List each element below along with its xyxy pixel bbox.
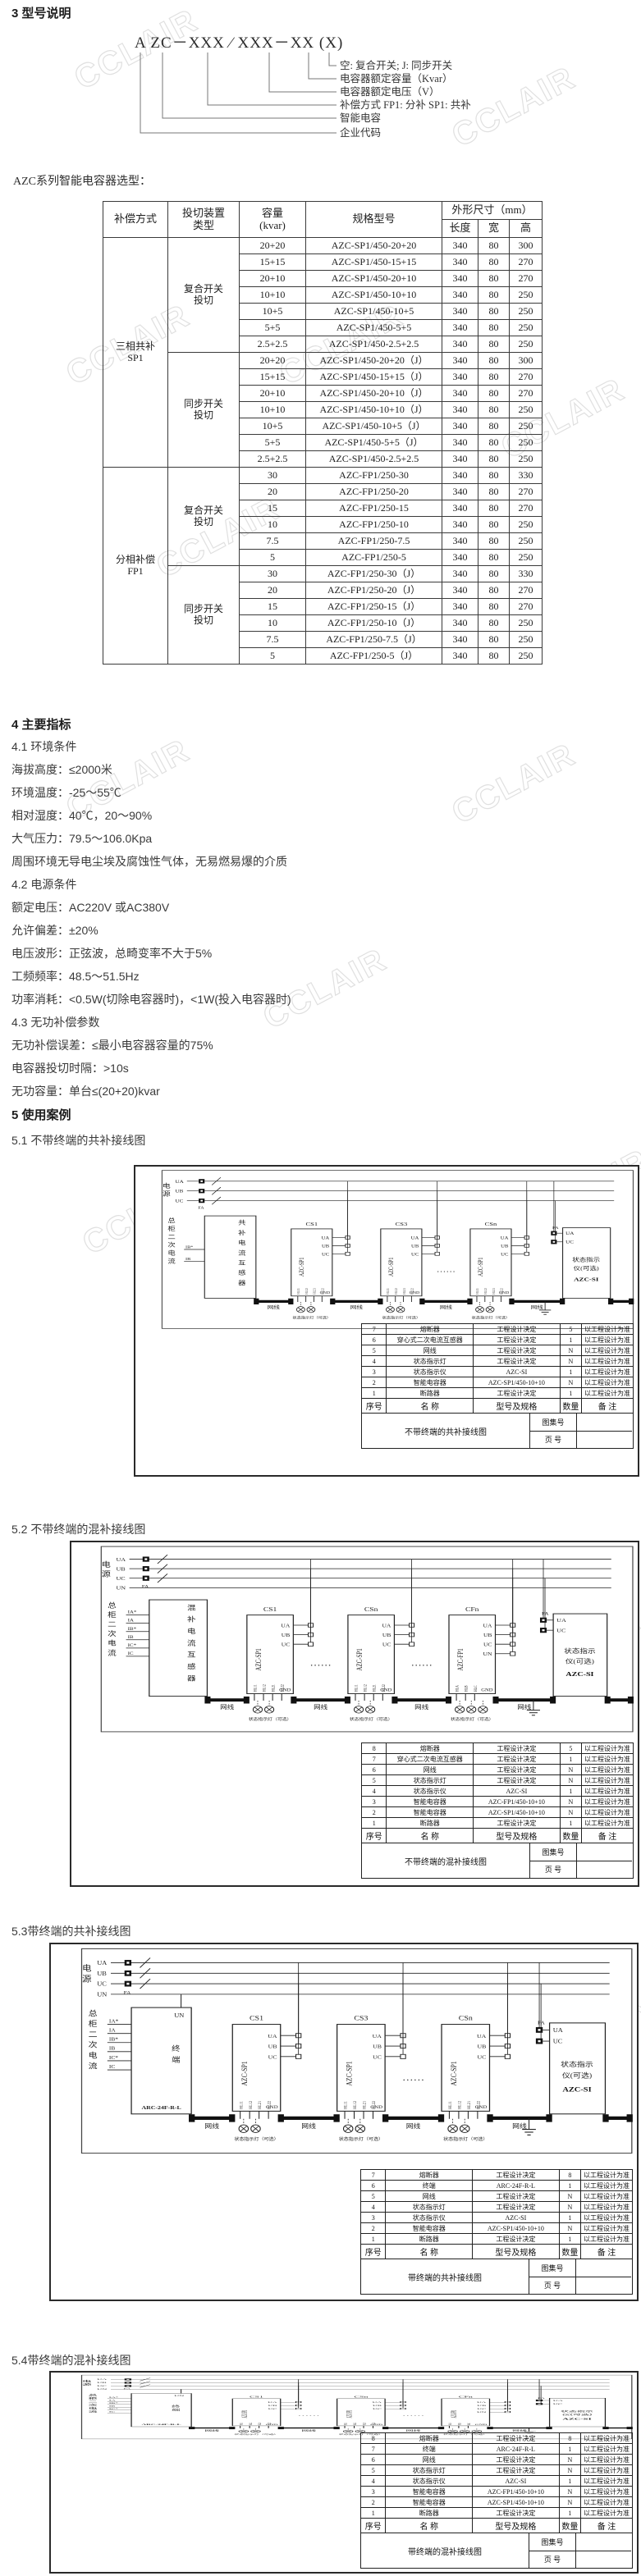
cable-connector <box>487 2114 492 2122</box>
unit-id: CFn <box>459 2396 474 2398</box>
unit-term-label: UA <box>483 1624 492 1628</box>
terminal-label: 端 <box>172 2056 181 2065</box>
parts-table: 8熔断器工程设计决定8以工程设计为准7终端ARC-24F-R-L1以工程设计为准… <box>360 2432 633 2533</box>
parts-header-cell: 型号及规格 <box>473 2245 560 2259</box>
parts-header-cell: 备 注 <box>582 1829 634 1843</box>
part-note: 以工程设计为准 <box>581 2234 633 2245</box>
part-qty: N <box>560 1775 581 1786</box>
part-spec: 工程设计决定 <box>474 1335 561 1345</box>
indicator-input-label: UC <box>556 1628 565 1633</box>
lamps-caption: 状态指示灯（可选） <box>249 1716 292 1722</box>
height-cell: 270 <box>510 254 543 271</box>
width-cell: 80 <box>478 517 510 533</box>
ct-label: 混 <box>187 1605 196 1612</box>
indicator-model: AZC-SI <box>574 1276 598 1282</box>
capacity-cell: 5 <box>240 550 306 566</box>
ellipsis: …… <box>411 1659 433 1668</box>
atlas-no-value <box>577 1843 632 1861</box>
spec-line: 功率消耗：<0.5W(切除电容器时)，<1W(投入电容器时) <box>11 988 291 1011</box>
col-height: 高 <box>510 220 543 238</box>
unit-pin-label: HLB <box>464 1685 469 1692</box>
indicator-model: AZC-SI <box>565 1670 594 1678</box>
phase-label: UA <box>97 1960 108 1966</box>
lamps-caption: 状态指示灯（可选） <box>339 2136 383 2142</box>
ct-label: 流 <box>187 1639 196 1647</box>
model-label: 补偿方式 FP1: 分补 SP1: 共补 <box>340 98 471 111</box>
cable-connector <box>229 2427 235 2429</box>
model-cell: AZC-SP1/450-5+5（J） <box>306 435 442 451</box>
cable-label: 网线 <box>314 1703 328 1710</box>
lamps-caption: 状态指示灯（可选） <box>451 1716 494 1722</box>
spec-line: 允许偏差：±20% <box>11 919 291 942</box>
part-qty: N <box>559 2497 580 2508</box>
phase-label: UC <box>175 1199 183 1204</box>
spec-line: 无功容量：单台≤(20+20)kvar <box>11 1080 291 1103</box>
length-cell: 340 <box>442 517 478 533</box>
cable-label: 网线 <box>406 2429 421 2432</box>
part-name: 网线 <box>387 1345 474 1356</box>
part-qty: N <box>560 1797 581 1807</box>
part-qty: 5 <box>560 1324 581 1335</box>
model-cell: AZC-FP1/250-10 <box>306 517 442 533</box>
power-label: 源 <box>163 1190 171 1197</box>
spec-line: 环境温度：-25～55℃ <box>11 781 291 804</box>
part-qty: 1 <box>559 2234 580 2245</box>
part-spec: 工程设计决定 <box>474 1754 561 1765</box>
cable-label: 网线 <box>301 2122 316 2130</box>
lamps-caption: 状态指示灯（可选） <box>382 1315 421 1320</box>
height-cell: 250 <box>510 615 543 632</box>
part-qty: N <box>559 2202 580 2213</box>
length-cell: 340 <box>442 369 478 386</box>
part-name: 智能电容器 <box>387 1377 474 1388</box>
power-label: 电 <box>82 1964 92 1974</box>
parts-row: 1断路器工程设计决定1以工程设计为准 <box>362 1388 634 1399</box>
indicator-model: AZC-SI <box>562 2418 591 2420</box>
indicator-box <box>550 2398 606 2427</box>
spec-line: 大气压力：79.5～106.0Kpa <box>11 827 291 850</box>
unit-pin-label: HLA <box>455 1685 460 1692</box>
part-spec: 工程设计决定 <box>474 1818 561 1829</box>
unit-pin-label: HLC <box>467 2423 471 2425</box>
part-name: 状态指示灯 <box>386 2465 473 2476</box>
unit-term-label: UB <box>382 1633 391 1638</box>
width-cell: 80 <box>478 582 510 599</box>
part-note: 以工程设计为准 <box>581 2223 633 2234</box>
switch-cell: 复合开关 投切 <box>168 468 240 566</box>
part-name: 智能电容器 <box>386 2497 473 2508</box>
height-cell: 250 <box>510 533 543 550</box>
terminal-label: 终 <box>172 2044 181 2053</box>
col-switch: 投切装置 类型 <box>168 202 240 238</box>
indicator-input-label: UA <box>565 1231 575 1236</box>
ellipsis: …… <box>437 1267 456 1274</box>
capacity-cell: 20 <box>240 484 306 500</box>
gnd-label: GND <box>370 2424 382 2426</box>
part-spec: 工程设计决定 <box>473 2455 560 2465</box>
cable-connector <box>345 1697 350 1704</box>
ct-box <box>149 1600 208 1697</box>
part-note: 以工程设计为准 <box>581 2444 633 2455</box>
part-spec: AZC-SI <box>473 2476 560 2487</box>
bus-label: 柜 <box>89 2397 98 2400</box>
width-cell: 80 <box>478 271 510 287</box>
unit-pin-label: HL11 <box>344 2101 348 2109</box>
width-cell: 80 <box>478 533 510 550</box>
indicator-name: 状态指示 <box>572 1256 600 1263</box>
bus-label: 次 <box>89 2040 98 2050</box>
power-label: 源 <box>82 1975 92 1985</box>
part-qty: 1 <box>560 1367 581 1377</box>
part-note: 以工程设计为准 <box>581 2508 633 2519</box>
part-spec: 工程设计决定 <box>473 2508 560 2519</box>
unit-term-label: UB <box>373 2044 382 2049</box>
part-no: 4 <box>362 1786 387 1797</box>
part-note: 以工程设计为准 <box>582 1807 634 1818</box>
width-cell: 80 <box>478 304 510 320</box>
part-no: 2 <box>361 2223 386 2234</box>
ct-pin-label: IB <box>185 1258 191 1262</box>
parts-table: 7熔断器工程设计决定8以工程设计为准6终端ARC-24F-R-L1以工程设计为准… <box>360 2169 633 2259</box>
capacity-cell: 10+10 <box>240 402 306 418</box>
spec-line: 4.1 环境条件 <box>11 735 291 758</box>
part-name: 断路器 <box>386 2508 473 2519</box>
capacity-cell: 2.5+2.5 <box>240 451 306 468</box>
parts-row: 6穿心式二次电流互感器工程设计决定1以工程设计为准 <box>362 1335 634 1345</box>
length-cell: 340 <box>442 599 478 615</box>
unit-pin-label: HL11 <box>354 1684 359 1692</box>
spec-line: 相对湿度：40℃，20～90% <box>11 804 291 827</box>
atlas-no-value <box>576 2259 631 2277</box>
cable-connector <box>378 1299 382 1304</box>
phase-label: UA <box>175 1180 184 1185</box>
part-note: 以工程设计为准 <box>582 1335 634 1345</box>
lamps-caption: 状态指示灯（可选） <box>234 2433 278 2435</box>
part-note: 以工程设计为准 <box>581 2191 633 2202</box>
part-qty: 1 <box>560 1818 581 1829</box>
indicator-model: AZC-SI <box>562 2086 592 2094</box>
part-qty: 1 <box>559 2476 580 2487</box>
phase-label: UA <box>116 1557 126 1563</box>
width-cell: 80 <box>478 287 510 304</box>
unit-model: AZC-SP1 <box>298 1257 305 1277</box>
section4-lines: 4.1 环境条件海拔高度：≤2000米环境温度：-25～55℃相对湿度：40℃，… <box>11 735 291 1103</box>
bus-label: 次 <box>89 2404 98 2406</box>
model-cell: AZC-SP1/450-2.5+2.5 <box>306 336 442 353</box>
parts-header-cell: 序号 <box>362 1399 387 1414</box>
part-qty: 5 <box>560 1743 581 1754</box>
model-cell: AZC-FP1/250-5（J） <box>306 648 442 665</box>
part-name: 熔断器 <box>386 2433 473 2444</box>
model-leader-line <box>140 53 337 133</box>
cable-connector <box>627 2114 633 2122</box>
unit-term-label: UB <box>411 1245 419 1249</box>
cable-connector <box>291 1697 296 1704</box>
drawing-title: 不带终端的混补接线图 <box>362 1843 530 1878</box>
phase-label: UC <box>97 2386 107 2387</box>
parts-header-cell: 备 注 <box>582 1399 634 1414</box>
unit-id: CS1 <box>250 2014 263 2021</box>
bus-label: 流 <box>89 2061 98 2071</box>
ct-pin-label: IB* <box>109 2037 119 2042</box>
part-no: 2 <box>362 1377 387 1388</box>
height-cell: 250 <box>510 451 543 468</box>
col-length: 长度 <box>442 220 478 238</box>
part-name: 状态指示仪 <box>387 1367 474 1377</box>
ct-pin-label: IB* <box>128 1626 137 1631</box>
terminal-label: 终 <box>172 2405 181 2407</box>
parts-row: 7熔断器工程设计决定8以工程设计为准 <box>361 2170 633 2181</box>
length-cell: 340 <box>442 468 478 484</box>
title-block: 带终端的共补接线图图集号页 号 <box>360 2259 633 2295</box>
unit-term-label: UC <box>477 2409 486 2410</box>
cable-connector <box>602 2114 608 2122</box>
part-note: 以工程设计为准 <box>581 2487 633 2497</box>
part-qty: N <box>560 1807 581 1818</box>
capacity-cell: 20+20 <box>240 353 306 369</box>
terminal-model: ARC-24F-R-L <box>142 2424 181 2426</box>
parts-table: 8熔断器工程设计决定5以工程设计为准7穿心式二次电流互感器工程设计决定1以工程设… <box>361 1742 634 1843</box>
part-name: 智能电容器 <box>386 2487 473 2497</box>
cable-connector <box>608 1299 613 1304</box>
phase-label: UB <box>97 1971 107 1977</box>
atlas-no-label: 图集号 <box>530 1414 577 1431</box>
capacity-cell: 7.5 <box>240 533 306 550</box>
ct-pin-label: IA <box>128 1618 135 1623</box>
part-note: 以工程设计为准 <box>582 1797 634 1807</box>
parts-header-cell: 数量 <box>559 2245 580 2259</box>
ct-pin-label: IC <box>128 1651 134 1656</box>
part-no: 4 <box>361 2476 386 2487</box>
col-model: 规格型号 <box>306 202 442 238</box>
length-cell: 340 <box>442 451 478 468</box>
length-cell: 340 <box>442 320 478 336</box>
parts-row: 3状态指示仪AZC-SI1以工程设计为准 <box>362 1367 634 1377</box>
part-spec: 工程设计决定 <box>473 2433 560 2444</box>
parts-row: 6网线工程设计决定N以工程设计为准 <box>361 2455 633 2465</box>
unit-term-label: UB <box>477 2405 486 2407</box>
title-block: 带终端的混补接线图图集号页 号 <box>360 2533 633 2569</box>
cable-connector <box>204 1697 210 1704</box>
watermark-text: CCLAIR <box>446 737 582 831</box>
model-cell: AZC-SP1/450-2.5+2.5 <box>306 451 442 468</box>
part-qty: N <box>559 2223 580 2234</box>
part-name: 智能电容器 <box>386 2223 473 2234</box>
part-note: 以工程设计为准 <box>581 2455 633 2465</box>
length-cell: 340 <box>442 402 478 418</box>
model-cell: AZC-FP1/250-15（J） <box>306 599 442 615</box>
unit-term-label: UC <box>373 2054 382 2060</box>
part-spec: AZC-SI <box>474 1367 561 1377</box>
bus-label: 电 <box>89 2407 98 2409</box>
section4-heading: 4 主要指标 <box>11 715 71 733</box>
phase-label: UN <box>116 1586 126 1592</box>
height-cell: 250 <box>510 435 543 451</box>
capacity-cell: 30 <box>240 468 306 484</box>
atlas-no-label: 图集号 <box>529 2533 576 2551</box>
part-name: 智能电容器 <box>387 1797 474 1807</box>
length-cell: 340 <box>442 304 478 320</box>
model-cell: AZC-FP1/250-5 <box>306 550 442 566</box>
wiring-schematic: 电源UAUBUCUNFA总柜二次电流IA*IAIB*IBIC*ICUN终端ARC… <box>53 2374 635 2440</box>
unit-model: AZC-SP1 <box>241 2410 250 2418</box>
length-cell: 340 <box>442 533 478 550</box>
cable-connector <box>438 2427 444 2429</box>
part-name: 状态指示仪 <box>386 2476 473 2487</box>
phase-label: UB <box>116 1566 125 1572</box>
part-no: 6 <box>361 2455 386 2465</box>
part-note: 以工程设计为准 <box>582 1775 634 1786</box>
part-note: 以工程设计为准 <box>581 2497 633 2508</box>
part-name: 熔断器 <box>387 1324 474 1335</box>
phase-label: UC <box>116 1576 125 1582</box>
part-note: 以工程设计为准 <box>581 2170 633 2181</box>
part-spec: AZC-SP1/450-10+10 <box>473 2497 560 2508</box>
capacity-cell: 10+10 <box>240 287 306 304</box>
height-cell: 270 <box>510 582 543 599</box>
width-cell: 80 <box>478 369 510 386</box>
unit-pin-label: HL12 <box>249 2100 253 2108</box>
unit-pin-label: HL11 <box>239 2423 243 2425</box>
mode-cell: 分相补偿 FP1 <box>103 468 168 665</box>
part-qty: 1 <box>560 1335 581 1345</box>
capacity-cell: 5+5 <box>240 320 306 336</box>
unit-model: AZC-SP1 <box>477 1257 484 1277</box>
model-cell: AZC-SP1/450-20+10 <box>306 271 442 287</box>
datasheet-page: CCLAIRCCLAIRCCLAIRCCLAIRCCLAIRCCLAIRCCLA… <box>0 0 641 2576</box>
part-name: 终端 <box>386 2444 473 2455</box>
indicator-name: 状态指示 <box>561 2409 593 2412</box>
parts-header-cell: 数量 <box>559 2519 580 2533</box>
unit-id: CS1 <box>250 2396 264 2398</box>
part-spec: AZC-SI <box>473 2213 560 2223</box>
unit-term-label: UB <box>322 1245 329 1249</box>
parts-row: 5状态指示灯工程设计决定N以工程设计为准 <box>361 2465 633 2476</box>
cable-connector <box>333 2427 339 2429</box>
gnd-label: GND <box>410 1291 420 1295</box>
length-cell: 340 <box>442 254 478 271</box>
part-note: 以工程设计为准 <box>582 1743 634 1754</box>
part-no: 6 <box>361 2181 386 2191</box>
part-note: 以工程设计为准 <box>581 2433 633 2444</box>
model-cell: AZC-FP1/250-10（J） <box>306 615 442 632</box>
part-spec: 工程设计决定 <box>474 1743 561 1754</box>
unit-model: AZC-SP1 <box>254 1648 263 1670</box>
width-cell: 80 <box>478 632 510 648</box>
part-qty: N <box>560 1377 581 1388</box>
page-no-label: 页 号 <box>529 2277 576 2295</box>
ct-label: 补 <box>238 1229 245 1235</box>
part-no: 2 <box>361 2497 386 2508</box>
part-no: 2 <box>362 1807 387 1818</box>
part-no: 3 <box>362 1797 387 1807</box>
ct-label: 补 <box>187 1615 196 1624</box>
cable-connector <box>446 1697 451 1704</box>
part-name: 断路器 <box>387 1388 474 1399</box>
cable-label: 网线 <box>512 2429 527 2432</box>
unit-term-label: UC <box>501 1253 508 1257</box>
unit-term-label: UC <box>282 1642 291 1647</box>
unit-pin-label: HL12 <box>395 1288 399 1295</box>
atlas-no-label: 图集号 <box>530 1843 577 1861</box>
parts-header-cell: 备 注 <box>581 2519 633 2533</box>
unit-id: CS3 <box>396 1221 408 1227</box>
model-code-text: A ZC－XXX ∕ XXX－XX (X) <box>135 34 343 52</box>
cable-connector <box>605 1697 611 1704</box>
unit-model: AZC-FP1 <box>456 1648 465 1670</box>
unit-term-label: UA <box>268 2402 277 2404</box>
parts-row: 3状态指示仪AZC-SI1以工程设计为准 <box>361 2213 633 2223</box>
indicator-name: 仪(可选) <box>574 1264 600 1271</box>
bus-label: 柜 <box>167 1225 175 1231</box>
cable-connector <box>467 1299 472 1304</box>
col-mode: 补偿方式 <box>103 202 168 238</box>
unit-pin-label: HL21 <box>372 1684 377 1692</box>
model-label: 智能电容 <box>340 112 381 124</box>
wiring-schematic: 电源UAUBUCUNFA总柜二次电流IA*IAIB*IBIC*IC混补电流互感器… <box>73 1544 636 1734</box>
title-block: 不带终端的共补接线图图集号页 号 <box>361 1414 634 1449</box>
height-cell: 300 <box>510 353 543 369</box>
ellipsis: …… <box>298 2414 320 2417</box>
unit-pin-label: HL21 <box>258 2423 262 2425</box>
cable-label: 网线 <box>268 1304 281 1311</box>
height-cell: 250 <box>510 418 543 435</box>
model-cell: AZC-FP1/250-7.5 <box>306 533 442 550</box>
model-cell: AZC-SP1/450-10+5（J） <box>306 418 442 435</box>
cable-connector <box>189 2427 195 2429</box>
terminal-label: 端 <box>172 2408 181 2410</box>
parts-header-cell: 数量 <box>560 1399 581 1414</box>
height-cell: 270 <box>510 599 543 615</box>
length-cell: 340 <box>442 648 478 665</box>
parts-row: 2智能电容器AZC-SP1/450-10+10N以工程设计为准 <box>362 1377 634 1388</box>
gnd-label: GND <box>475 2424 488 2426</box>
length-cell: 340 <box>442 271 478 287</box>
part-note: 以工程设计为准 <box>582 1324 634 1335</box>
parts-row: 7穿心式二次电流互感器工程设计决定1以工程设计为准 <box>362 1754 634 1765</box>
capacity-cell: 20+20 <box>240 238 306 254</box>
parts-header-row: 序号名 称型号及规格数量备 注 <box>362 1399 634 1414</box>
indicator-fa-label: FA <box>542 1611 549 1616</box>
selection-row: 三相共补 SP1复合开关 投切20+20AZC-SP1/450-20+20340… <box>103 238 543 254</box>
indicator-input-label: UC <box>553 2038 563 2044</box>
part-no: 1 <box>362 1388 387 1399</box>
unit-pin-label: HL12 <box>363 1684 368 1692</box>
part-no: 5 <box>361 2465 386 2476</box>
ct-label: 感 <box>187 1662 196 1670</box>
fa-label: FA <box>124 1990 131 1995</box>
height-cell: 250 <box>510 632 543 648</box>
model-cell: AZC-FP1/250-20 <box>306 484 442 500</box>
page-no-value <box>576 2277 631 2295</box>
indicator-box <box>563 1228 611 1299</box>
part-spec: AZC-FP1/450-10+10 <box>474 1797 561 1807</box>
cable-connector <box>546 2427 552 2429</box>
ellipsis: …… <box>402 2072 424 2083</box>
parts-header-cell: 名 称 <box>387 1399 474 1414</box>
length-cell: 340 <box>442 484 478 500</box>
part-no: 3 <box>361 2213 386 2223</box>
lamps-caption: 状态指示灯（可选） <box>472 1315 511 1320</box>
selection-row: 同步开关 投切30AZC-FP1/250-30（J）34080330 <box>103 566 543 582</box>
capacity-cell: 5 <box>240 648 306 665</box>
part-note: 以工程设计为准 <box>582 1754 634 1765</box>
ct-label: 器 <box>187 1674 196 1682</box>
title-block: 不带终端的混补接线图图集号页 号 <box>361 1843 634 1879</box>
part-name: 状态指示灯 <box>387 1775 474 1786</box>
ct-box <box>204 1216 256 1298</box>
unit-term-label: UB <box>501 1245 508 1249</box>
